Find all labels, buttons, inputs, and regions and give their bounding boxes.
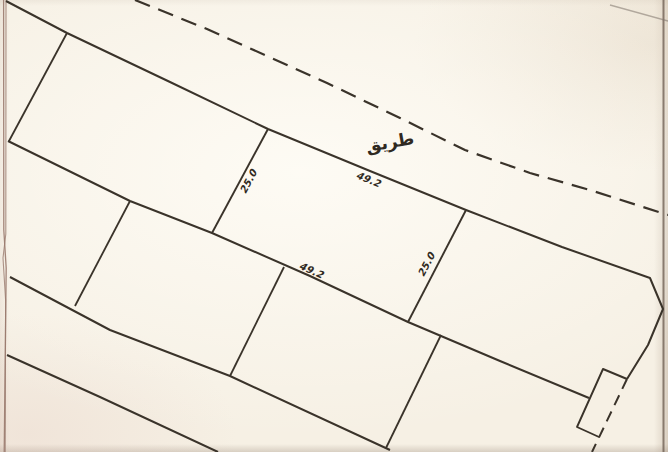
dimension-label-top-width: 49.2 (354, 169, 383, 189)
frontage-and-right-boundary-line (6, 1, 663, 379)
right-boundary-dashed-line (592, 379, 627, 452)
road-name-label: طريق (364, 128, 415, 157)
parcel-divider-row2-b (230, 267, 284, 376)
central-parcel-left-edge (212, 129, 268, 233)
parcel-divider-row2-c (386, 335, 441, 448)
dimension-label-right-depth: 25.0 (415, 250, 437, 278)
cadastral-sketch-page: طريق 49.2 49.2 25.0 25.0 (0, 0, 668, 452)
plot-map-svg: طريق 49.2 49.2 25.0 25.0 (0, 0, 668, 452)
strip-boundary-line-3 (10, 277, 390, 450)
parcel-divider-row2-a (75, 201, 130, 306)
parcel-divider-row1-left (9, 33, 67, 141)
substation-notch-outline (577, 369, 627, 437)
page-frame-left-border (3, 0, 6, 452)
central-parcel-right-edge (408, 210, 466, 322)
strip-boundary-line-4 (7, 355, 218, 452)
scan-edge-line-top-right (610, 5, 668, 21)
